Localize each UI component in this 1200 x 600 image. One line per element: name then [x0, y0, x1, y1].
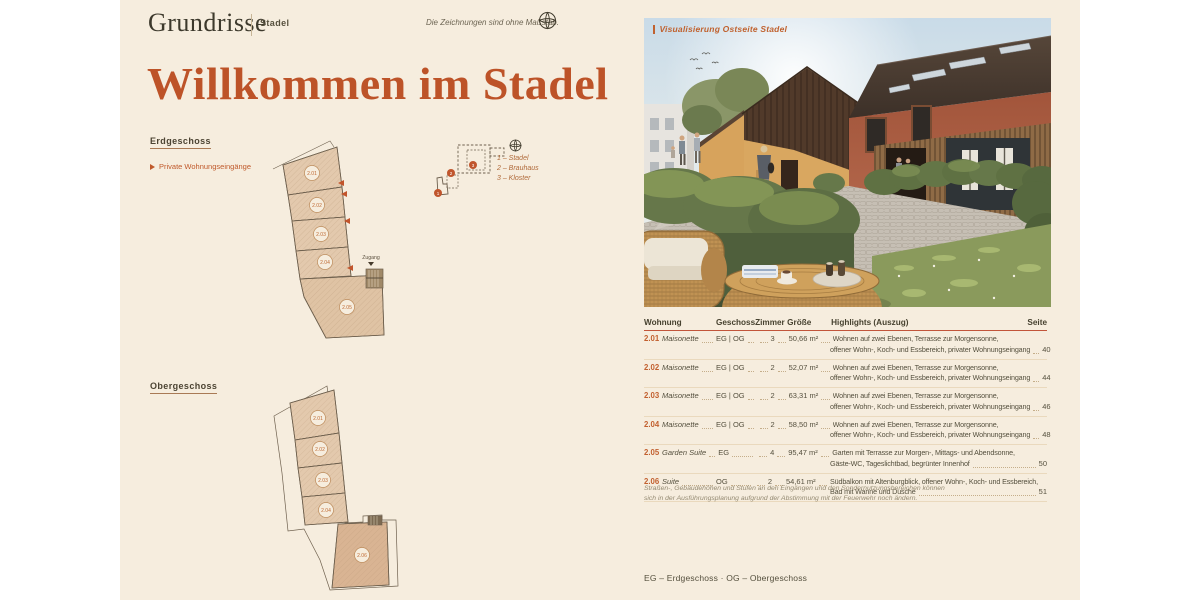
col-highlights: Highlights (Auszug)	[831, 318, 1027, 327]
table-header: Wohnung Geschoss Zimmer Größe Highlights…	[644, 318, 1047, 331]
table-row: 2.04Maisonette EG | OG 2 58,50 m² Wohnen…	[644, 417, 1047, 446]
svg-text:2.03: 2.03	[318, 478, 328, 484]
plan-legend-label: Private Wohnungseingänge	[159, 162, 251, 171]
entrance-marker-icon	[150, 164, 155, 170]
col-seite: Seite	[1027, 318, 1047, 327]
unit-highlight-1: Wohnen auf zwei Ebenen, Terrasse zur Mor…	[833, 334, 1047, 345]
svg-text:1: 1	[437, 191, 440, 196]
og-stairs	[368, 516, 382, 525]
unit-page: 48	[1042, 430, 1050, 441]
svg-text:2.02: 2.02	[315, 447, 325, 453]
unit-number: 2.01	[644, 334, 662, 345]
unit-geschoss: EG | OG	[716, 334, 745, 345]
col-wohnung: Wohnung	[644, 318, 716, 327]
unit-groesse: 50,66 m²	[789, 334, 819, 345]
svg-text:2.02: 2.02	[312, 203, 322, 209]
unit-geschoss: EG | OG	[716, 391, 745, 402]
compass-icon	[538, 11, 557, 30]
caption-bar	[653, 25, 655, 34]
unit-geschoss: EG	[718, 448, 729, 459]
col-zimmer: Zimmer	[755, 318, 787, 327]
photo-caption: Visualisierung Ostseite Stadel	[653, 24, 787, 34]
site-legend-item: 3 – Kloster	[497, 174, 539, 184]
unit-type: Maisonette	[662, 334, 699, 345]
table-row: 2.01Maisonette EG | OG 3 50,66 m² Wohnen…	[644, 331, 1047, 360]
unit-groesse: 63,31 m²	[789, 391, 819, 402]
unit-highlight-2: Gäste-WC, Tageslichtbad, begrünter Innen…	[830, 459, 970, 470]
unit-page: 50	[1039, 459, 1047, 470]
table-row: 2.03Maisonette EG | OG 2 63,31 m² Wohnen…	[644, 388, 1047, 417]
unit-type: Maisonette	[662, 391, 699, 402]
unit-page: 46	[1042, 402, 1050, 413]
unit-zimmer: 3	[771, 334, 775, 345]
brand-divider	[251, 14, 252, 36]
unit-number: 2.03	[644, 391, 662, 402]
site-legend-item: 1 – Stadel	[497, 154, 539, 164]
eg-units	[273, 141, 384, 338]
unit-zimmer: 2	[771, 363, 775, 374]
rattan-armchair	[644, 231, 727, 307]
svg-text:2.05: 2.05	[342, 305, 352, 311]
content-area: Grundrisse Stadel Die Zeichnungen sind o…	[120, 0, 1080, 600]
section-label-erdgeschoss: Erdgeschoss	[150, 136, 211, 149]
section-label-obergeschoss: Obergeschoss	[150, 381, 217, 394]
brochure-page: Grundrisse Stadel Die Zeichnungen sind o…	[0, 0, 1200, 600]
floorplan-erdgeschoss: 2.01 2.02 2.03 2.04 2.05 Zugang	[270, 135, 410, 345]
svg-text:2.04: 2.04	[321, 508, 331, 514]
unit-number: 2.05	[644, 448, 662, 459]
unit-page: 44	[1042, 373, 1050, 384]
svg-text:2.06: 2.06	[357, 553, 367, 559]
site-plan: 3 2 1	[425, 140, 505, 200]
unit-zimmer: 2	[771, 420, 775, 431]
table-row: 2.05Garden Suite EG 4 95,47 m² Garten mi…	[644, 445, 1047, 474]
unit-type: Maisonette	[662, 363, 699, 374]
unit-highlight-2: offener Wohn-, Koch- und Essbereich, pri…	[830, 430, 1030, 441]
eg-stairs	[366, 269, 383, 288]
site-legend: 1 – Stadel 2 – Brauhaus 3 – Kloster	[497, 154, 539, 184]
unit-page: 40	[1042, 345, 1050, 356]
unit-zimmer: 2	[771, 391, 775, 402]
unit-highlight-2: offener Wohn-, Koch- und Essbereich, pri…	[830, 402, 1030, 413]
unit-highlight-2: offener Wohn-, Koch- und Essbereich, pri…	[830, 373, 1030, 384]
visualization-image: Visualisierung Ostseite Stadel	[644, 18, 1051, 307]
unit-groesse: 58,50 m²	[789, 420, 819, 431]
unit-page: 51	[1039, 487, 1047, 498]
svg-text:2.01: 2.01	[313, 416, 323, 422]
apartment-table: Wohnung Geschoss Zimmer Größe Highlights…	[644, 318, 1047, 502]
unit-highlight-1: Wohnen auf zwei Ebenen, Terrasse zur Mor…	[833, 391, 1047, 402]
og-units	[290, 390, 389, 588]
unit-geschoss: EG | OG	[716, 420, 745, 431]
svg-text:Zugang: Zugang	[362, 255, 380, 261]
footnote-line: Straßen-, Gebäudehöhen und Stufen an den…	[644, 484, 945, 494]
unit-zimmer: 4	[770, 448, 774, 459]
unit-groesse: 95,47 m²	[788, 448, 818, 459]
col-geschoss: Geschoss	[716, 318, 755, 327]
svg-text:2.03: 2.03	[316, 232, 326, 238]
unit-geschoss: EG | OG	[716, 363, 745, 374]
site-markers: 3 2 1	[434, 161, 477, 197]
unit-groesse: 52,07 m²	[789, 363, 819, 374]
footnote-line: sich in der Ausführungsplanung aufgrund …	[644, 494, 945, 504]
unit-highlight-1: Wohnen auf zwei Ebenen, Terrasse zur Mor…	[833, 363, 1047, 374]
svg-text:2.04: 2.04	[320, 260, 330, 266]
unit-type: Garden Suite	[662, 448, 706, 459]
floorplan-obergeschoss: 2.01 2.02 2.03 2.04 2.06	[270, 383, 415, 595]
site-legend-item: 2 – Brauhaus	[497, 164, 539, 174]
zugang-label: Zugang	[362, 255, 380, 266]
unit-type: Maisonette	[662, 420, 699, 431]
compass-icon-small	[509, 139, 522, 152]
caption-text: Visualisierung Ostseite Stadel	[660, 24, 788, 34]
project-label: Stadel	[260, 18, 289, 28]
table-row: 2.02Maisonette EG | OG 2 52,07 m² Wohnen…	[644, 360, 1047, 389]
svg-text:3: 3	[472, 163, 475, 168]
col-groesse: Größe	[787, 318, 831, 327]
visualization-render	[644, 18, 1051, 307]
table-footnote: Straßen-, Gebäudehöhen und Stufen an den…	[644, 484, 945, 503]
svg-text:2.01: 2.01	[307, 171, 317, 177]
page-title: Willkommen im Stadel	[147, 57, 609, 110]
unit-highlight-1: Garten mit Terrasse zur Morgen-, Mittags…	[832, 448, 1047, 459]
unit-highlight-2: offener Wohn-, Koch- und Essbereich, pri…	[830, 345, 1030, 356]
brand-title: Grundrisse	[148, 8, 267, 38]
plan-legend: Private Wohnungseingänge	[150, 162, 251, 171]
unit-highlight-1: Wohnen auf zwei Ebenen, Terrasse zur Mor…	[833, 420, 1047, 431]
abbreviation-legend: EG – Erdgeschoss · OG – Obergeschoss	[644, 573, 807, 583]
svg-text:2: 2	[450, 171, 453, 176]
unit-number: 2.04	[644, 420, 662, 431]
unit-number: 2.02	[644, 363, 662, 374]
